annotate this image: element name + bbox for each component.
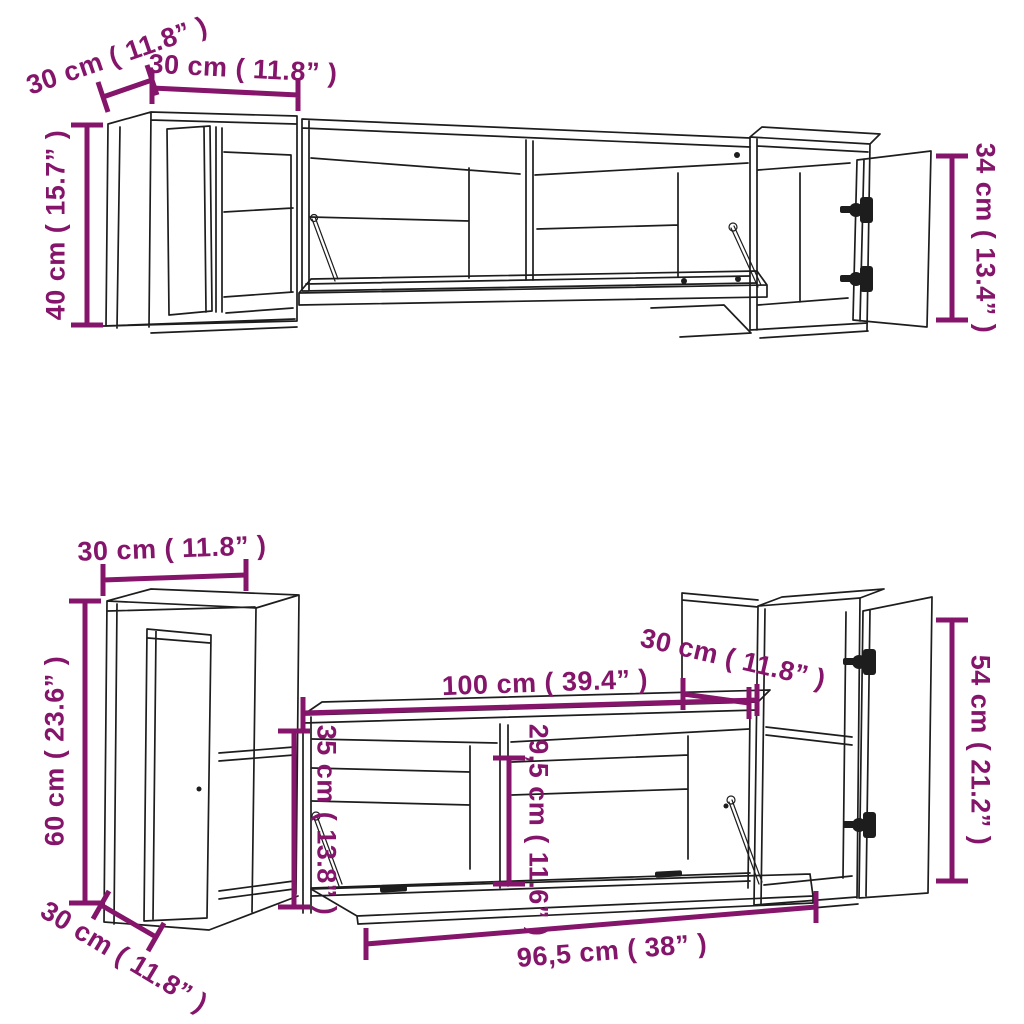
dim-label-bottom-height-left: 60 cm ( 23.6” ) [40,656,71,847]
bottom-view-drawing [69,559,968,960]
cabinet-outline [104,589,299,930]
dim-line-height-right-cabinet [936,620,968,881]
dim-line-inner-height [493,758,525,884]
dim-label-top-height-right: 34 cm ( 13.4” ) [970,143,1001,334]
shelf-pin [724,804,729,809]
top-left-cabinet [103,112,297,333]
top-right-cabinet [651,127,931,338]
stay-pivot [729,223,737,231]
door-hinge-icon [840,266,873,292]
dim-line-height-right [936,156,968,320]
cabinet-divider-shelf [216,127,293,313]
furniture-line-art [0,0,1024,1024]
dim-label-bottom-inner-height: 29,5 cm ( 11.6” ) [523,724,554,937]
dim-label-bottom-width-left: 30 cm ( 11.8” ) [77,530,267,568]
cabinet-outline [103,112,297,333]
shelf-pin [735,276,741,282]
dim-label-bottom-height-tv: 35 cm ( 13.8” ) [311,725,342,916]
cabinet-open-door [144,629,211,921]
cabinet-open-door [853,151,931,327]
cabinet-open-door [859,597,932,898]
dim-line-height-left-cabinet [69,601,101,903]
dim-line-height-left [71,125,103,325]
dim-label-bottom-height-right: 54 cm ( 21.2” ) [965,655,996,846]
bottom-right-cabinet [682,589,932,912]
stay-pivot [727,796,735,804]
unit-outline [302,119,757,291]
shelf-pin [734,152,740,158]
diagram-canvas: 30 cm ( 11.8” ) 30 cm ( 11.8” ) 40 cm ( … [0,0,1024,1024]
dim-line-height-tv-unit [278,731,310,907]
cabinet-open-door [167,126,212,315]
door-handle [197,787,202,792]
top-view-drawing [71,65,968,338]
flap-handle [655,870,682,877]
unit-interior [310,140,748,280]
top-middle-unit [299,119,767,305]
bottom-tv-unit [303,690,813,924]
bottom-shelf-lip [651,305,751,337]
shelf-pin [681,278,687,284]
bottom-left-cabinet [104,589,299,930]
cabinet-interior [758,163,850,305]
bottom-dimension-lines [69,559,968,960]
dim-label-top-height-left: 40 cm ( 15.7” ) [41,130,72,321]
cabinet-shelves [219,747,294,899]
